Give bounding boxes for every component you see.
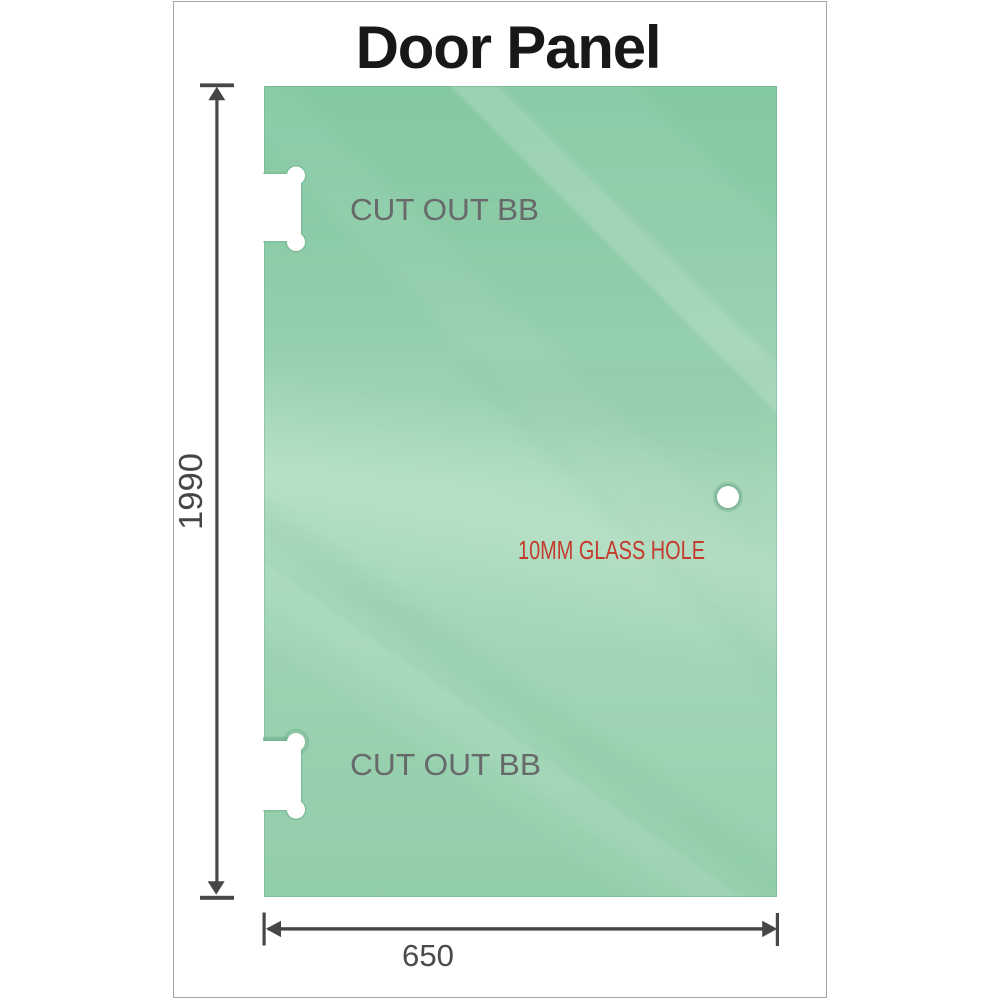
svg-text:650: 650 (402, 938, 454, 973)
svg-text:10MM GLASS HOLE: 10MM GLASS HOLE (518, 535, 705, 565)
svg-text:CUT OUT BB: CUT OUT BB (350, 747, 541, 782)
svg-text:1990: 1990 (172, 453, 209, 530)
svg-text:CUT OUT BB: CUT OUT BB (350, 192, 539, 227)
